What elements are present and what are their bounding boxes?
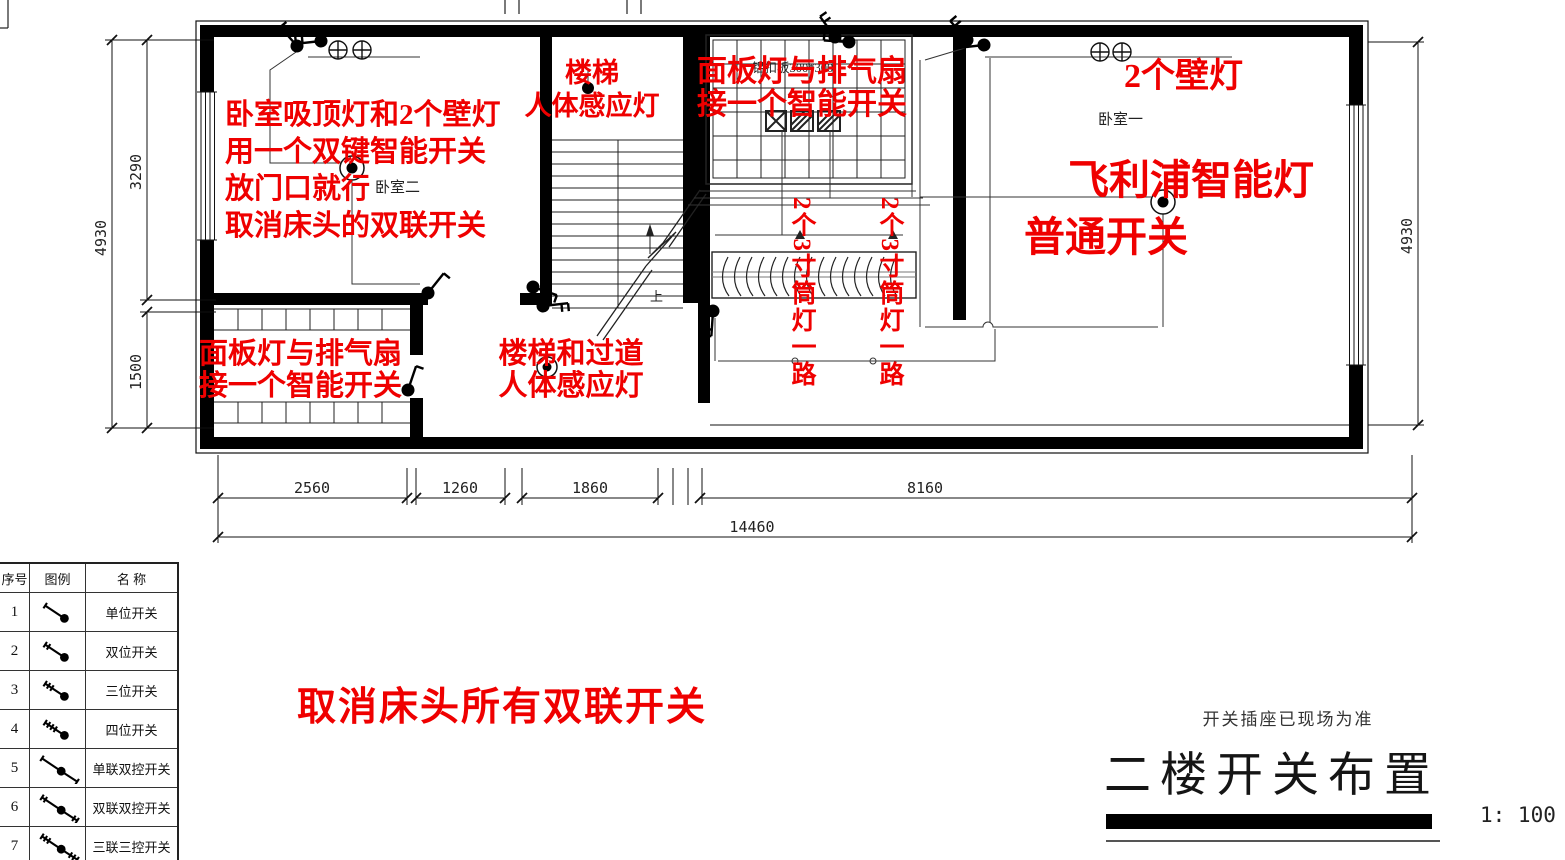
switch-symbol-icon	[30, 788, 86, 826]
switch-symbol-icon	[30, 710, 86, 748]
note-cancel-all: 取消床头所有双联开关	[297, 676, 707, 732]
dim-1260: 1260	[442, 479, 478, 497]
stairs	[552, 140, 706, 340]
legend-header-row: 序号 图例 名 称	[0, 564, 177, 593]
title-note: 开关插座已现场为准	[1148, 705, 1428, 730]
note-philips-line1: 飞利浦智能灯	[1068, 146, 1314, 206]
dim-2560: 2560	[294, 479, 330, 497]
switch-symbol-icon	[30, 827, 86, 860]
legend-row: 3 三位开关	[0, 671, 177, 710]
note-panel-top: 面板灯与排气扇 接一个智能开关	[697, 55, 907, 121]
drawing-title: 二楼开关布置	[1104, 736, 1440, 805]
legend-row: 7 三联三控开关	[0, 827, 177, 860]
switch-symbol-icon	[30, 593, 86, 631]
dim-left-bottom: 1500	[127, 354, 145, 390]
title-underbar	[1106, 814, 1432, 829]
dim-right-total: 4930	[1398, 218, 1416, 254]
legend-table: 序号 图例 名 称 1 单位开关 2 双位开关 3	[0, 562, 179, 860]
switch-symbol-icon	[30, 749, 86, 787]
title-underline	[1106, 840, 1440, 842]
dim-left-top: 3290	[127, 154, 145, 190]
note-downlight-right: 2个3寸筒灯一路	[871, 197, 907, 487]
legend-header-name: 名 称	[86, 564, 177, 592]
note-bathroom: 面板灯与排气扇 接一个智能开关	[199, 338, 402, 402]
note-corridor: 楼梯和过道 人体感应灯	[486, 338, 656, 402]
drawing-canvas: 卧室二 卧室一 铝扣板300*300 上	[0, 0, 1565, 860]
note-bedroom2: 卧室吸顶灯和2个壁灯 用一个双键智能开关 放门口就行 取消床头的双联开关	[225, 97, 501, 245]
note-philips-line2: 普通开关	[1024, 203, 1188, 263]
dim-1860: 1860	[572, 479, 608, 497]
room-label-bedroom1: 卧室一	[1098, 111, 1143, 128]
legend-row: 5 单联双控开关	[0, 749, 177, 788]
legend-row: 6 双联双控开关	[0, 788, 177, 827]
note-downlight-left: 2个3寸筒灯一路	[783, 197, 819, 487]
switch-symbol-icon	[30, 632, 86, 670]
note-stair-sensor: 楼梯 人体感应灯	[512, 57, 672, 123]
dim-left-total: 4930	[92, 220, 110, 256]
drawing-scale: 1: 100	[1480, 803, 1556, 827]
legend-header-no: 序号	[0, 564, 30, 592]
legend-row: 2 双位开关	[0, 632, 177, 671]
legend-header-symbol: 图例	[30, 564, 86, 592]
legend-row: 4 四位开关	[0, 710, 177, 749]
dim-14460: 14460	[729, 518, 774, 536]
frame-lines	[0, 0, 641, 28]
legend-row: 1 单位开关	[0, 593, 177, 632]
switch-symbol-icon	[30, 671, 86, 709]
dim-8160: 8160	[907, 479, 943, 497]
stair-up-label: 上	[650, 289, 663, 304]
note-wall-lamps: 2个壁灯	[1124, 48, 1243, 97]
